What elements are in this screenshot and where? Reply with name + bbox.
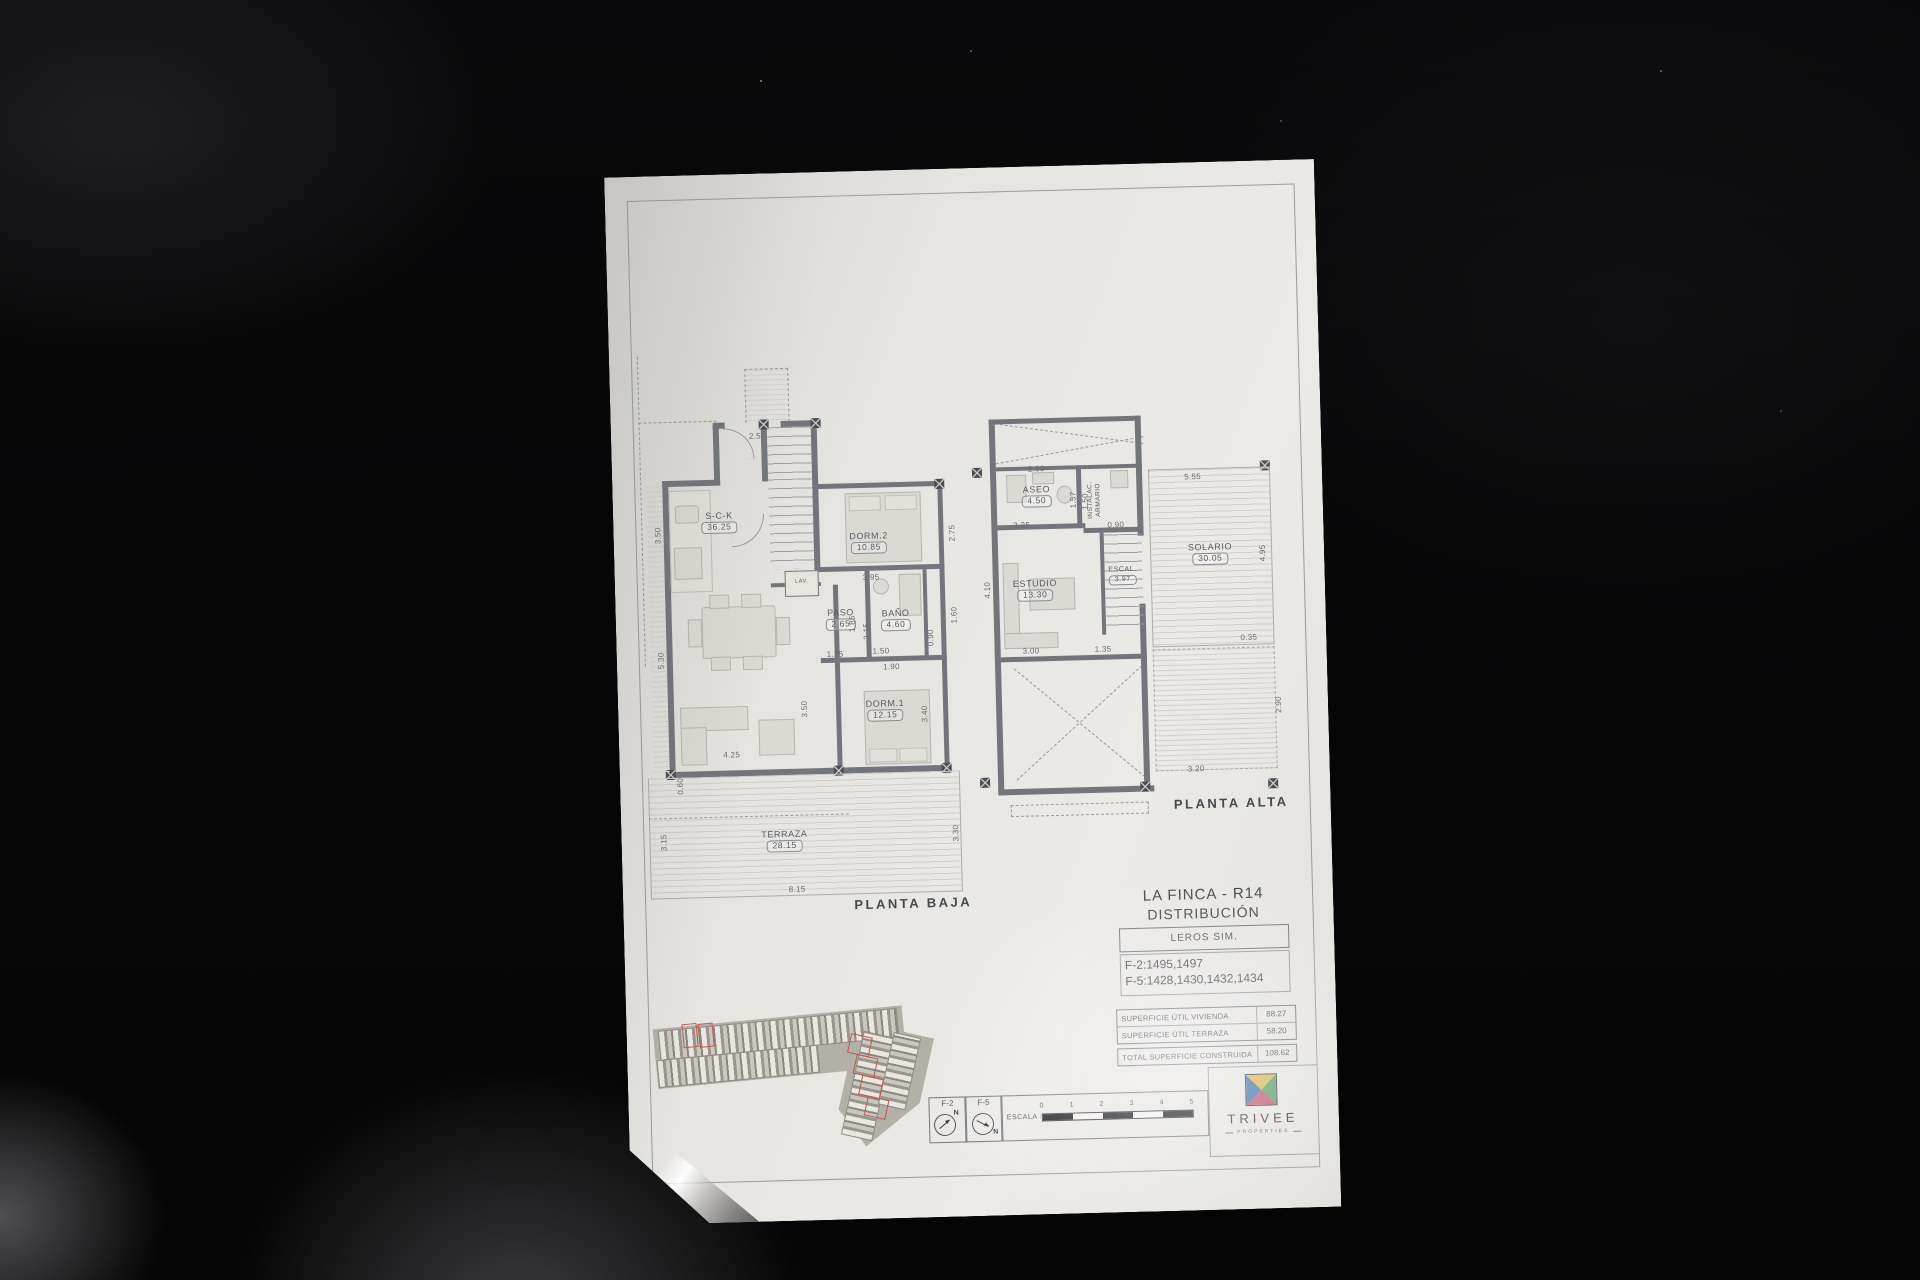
dimension-label: 3.50 xyxy=(653,527,662,544)
dimension-label: 3.30 xyxy=(951,825,960,842)
column xyxy=(810,418,820,428)
room-label-dorm2: DORM.2 10.85 xyxy=(839,530,898,555)
f2-label: F-2 xyxy=(929,1097,965,1108)
dimension-label: 0.60 xyxy=(676,778,685,795)
chair xyxy=(711,656,731,671)
entry-steps xyxy=(744,368,789,423)
room-label-lav: LAV. xyxy=(786,578,818,585)
scale-box: ESCALA : 0 1 2 3 4 5 xyxy=(1000,1090,1209,1141)
sink xyxy=(1032,472,1054,485)
pillow xyxy=(869,748,897,763)
room-label-aseo: ASEO 4.50 xyxy=(1010,484,1063,508)
title-block: LA FINCA - R14 DISTRIBUCIÓN LEROS SIM. F… xyxy=(604,159,1314,178)
column xyxy=(1268,778,1278,788)
lower-roof-hatch xyxy=(1153,646,1278,771)
chair xyxy=(688,619,703,647)
scale-tick: 0 xyxy=(1039,1102,1043,1109)
chair xyxy=(741,594,761,609)
stairs-run xyxy=(768,478,814,569)
dimension-label: 1.85 xyxy=(848,615,857,632)
dimension-label: 3.35 xyxy=(1013,521,1030,530)
table-row: SUPERFICIE ÚTIL TERRAZA 58.20 xyxy=(1118,1023,1296,1044)
compass-needle xyxy=(939,1120,950,1129)
dimension-label: 2.90 xyxy=(1274,696,1283,713)
unit-numbers: F-2:1495,1497 F-5:1428,1430,1432,1434 xyxy=(1120,950,1291,996)
trivee-logo: TRIVEE PROPERTIES xyxy=(604,159,1314,178)
dimension-label: 2.75 xyxy=(947,525,956,542)
scale-bar xyxy=(1042,1109,1194,1121)
f5-label: F-5 xyxy=(965,1096,1001,1107)
dimension-label: 4.25 xyxy=(723,750,740,759)
kitchen-hob xyxy=(674,547,703,580)
sofa xyxy=(681,727,708,766)
dimension-label: 1.35 xyxy=(1095,644,1112,653)
room-label-sck: S-C-K 36.25 xyxy=(689,510,750,535)
dimension-label: 3.95 xyxy=(863,573,880,582)
void-diagonal xyxy=(1017,665,1143,781)
room-label-dorm1: DORM.1 12.15 xyxy=(856,698,915,723)
dimension-label: 0.90 xyxy=(926,629,935,646)
stairs-winder xyxy=(767,426,812,479)
compass-icon xyxy=(934,1114,957,1137)
column xyxy=(1140,781,1150,791)
highlighted-unit xyxy=(681,1023,698,1048)
scale-strip: F-2 N F-5 N ESCALA : 0 1 2 3 4 5 xyxy=(604,159,1314,178)
dimension-label: 1.50 xyxy=(872,646,889,655)
coffee-table xyxy=(758,719,795,756)
pillow xyxy=(899,747,927,762)
site-plan-thumbnail xyxy=(646,1009,940,1167)
dimension-label: 5.30 xyxy=(656,652,665,669)
logo-name: TRIVEE xyxy=(1221,1110,1305,1127)
table-row: TOTAL SUPERFICIE CONSTRUIDA 108.62 xyxy=(1118,1045,1296,1066)
room-label-bano: BAÑO 4.60 xyxy=(872,607,921,631)
scale-tick: 1 xyxy=(1069,1102,1073,1109)
chair xyxy=(776,617,791,645)
pillow xyxy=(885,495,917,511)
pillow xyxy=(849,495,881,511)
planta-baja-plan: 2.50 xyxy=(604,159,1314,178)
dimension-label: 2.15 xyxy=(862,623,871,640)
dimension-label: 1.57 xyxy=(1068,491,1077,508)
double-height-void xyxy=(1003,661,1144,787)
chair xyxy=(709,594,729,609)
north-label: N xyxy=(954,1110,959,1117)
scale-tick: 4 xyxy=(1159,1099,1163,1106)
room-label-escal: ESCAL. 3.97 xyxy=(1100,566,1144,586)
dining-table xyxy=(701,605,776,659)
wall xyxy=(713,423,725,429)
dimension-label: 3.50 xyxy=(800,701,809,718)
scale-tick: 3 xyxy=(1129,1100,1133,1107)
room-label-estudio: ESTUDIO 13.30 xyxy=(1007,578,1064,603)
room-label-terraza: TERRAZA 28.15 xyxy=(749,828,820,853)
areas-table: SUPERFICIE ÚTIL VIVIENDA 88.27 SUPERFICI… xyxy=(1116,1005,1297,1045)
logo-mark xyxy=(1246,1074,1277,1105)
dimension-label: 3.40 xyxy=(920,705,929,722)
room-label-solario: SOLARIO 30.05 xyxy=(1180,541,1241,566)
photo-of-floorplan-sheet: 2.50 xyxy=(0,0,1920,1280)
dimension-label: 0.90 xyxy=(1107,520,1124,529)
scale-tick: 5 xyxy=(1189,1098,1193,1105)
dimension-label: 1.50 xyxy=(1080,493,1089,510)
chair xyxy=(743,656,763,671)
dimension-label: 5.55 xyxy=(1184,472,1201,481)
escala-label: ESCALA : xyxy=(1007,1113,1042,1121)
studio-sofa xyxy=(1002,563,1020,643)
dimension-label: 2.90 xyxy=(1028,464,1045,473)
column xyxy=(934,479,944,489)
dust-speckles xyxy=(760,80,762,82)
scale-tick: 2 xyxy=(1099,1101,1103,1108)
laundry-closet: LAV. xyxy=(784,570,819,597)
column xyxy=(972,468,982,478)
compass-icon xyxy=(972,1113,995,1136)
dimension-label: 1.25 xyxy=(827,649,844,658)
dimension-label: 1.90 xyxy=(883,662,900,671)
paper-sheet: 2.50 xyxy=(604,159,1341,1225)
dimension-label: 4.95 xyxy=(1258,544,1267,561)
dimension-label: 0.35 xyxy=(1240,633,1257,642)
washing-machine xyxy=(1110,470,1128,488)
room-label-armario: ARMARIO xyxy=(1094,475,1102,525)
model-name: LEROS SIM. xyxy=(1119,924,1290,952)
dimension-label: 4.10 xyxy=(983,582,992,599)
compass-needle xyxy=(976,1120,988,1127)
north-label: N xyxy=(993,1129,998,1136)
dimension-label: 1.60 xyxy=(949,607,958,624)
highlighted-unit xyxy=(697,1023,714,1048)
dimension-label: 8.15 xyxy=(789,885,806,894)
orientation-f5: F-5 N xyxy=(964,1095,1003,1142)
dimension-label: 3.20 xyxy=(1188,764,1205,773)
dimension-label: 3.00 xyxy=(1023,646,1040,655)
orientation-f2: F-2 N xyxy=(928,1096,967,1143)
column xyxy=(980,778,990,788)
planta-alta-plan: ASEO 4.50 INSTALAC. ARMARIO ESTUDIO 13.3… xyxy=(604,159,1314,178)
dimension-label: 3.15 xyxy=(659,834,668,851)
